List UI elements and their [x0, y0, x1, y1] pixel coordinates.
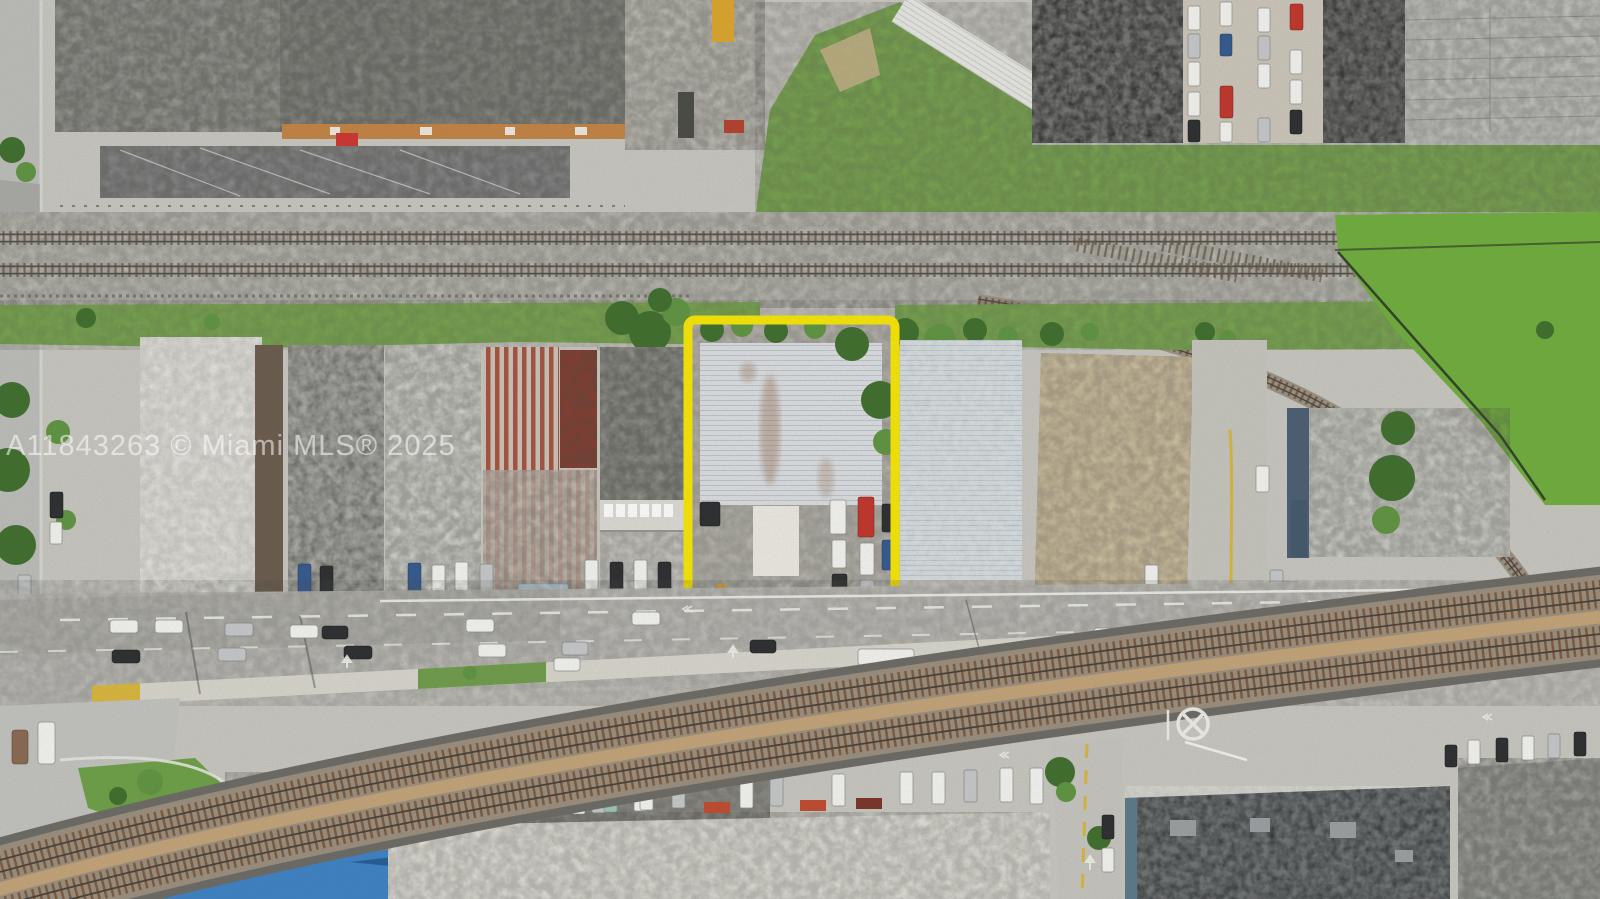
watermark-text: A11843263 © Miami MLS® 2025 [6, 430, 456, 463]
aerial-photo: A11843263 © Miami MLS® 2025 [0, 0, 1600, 899]
